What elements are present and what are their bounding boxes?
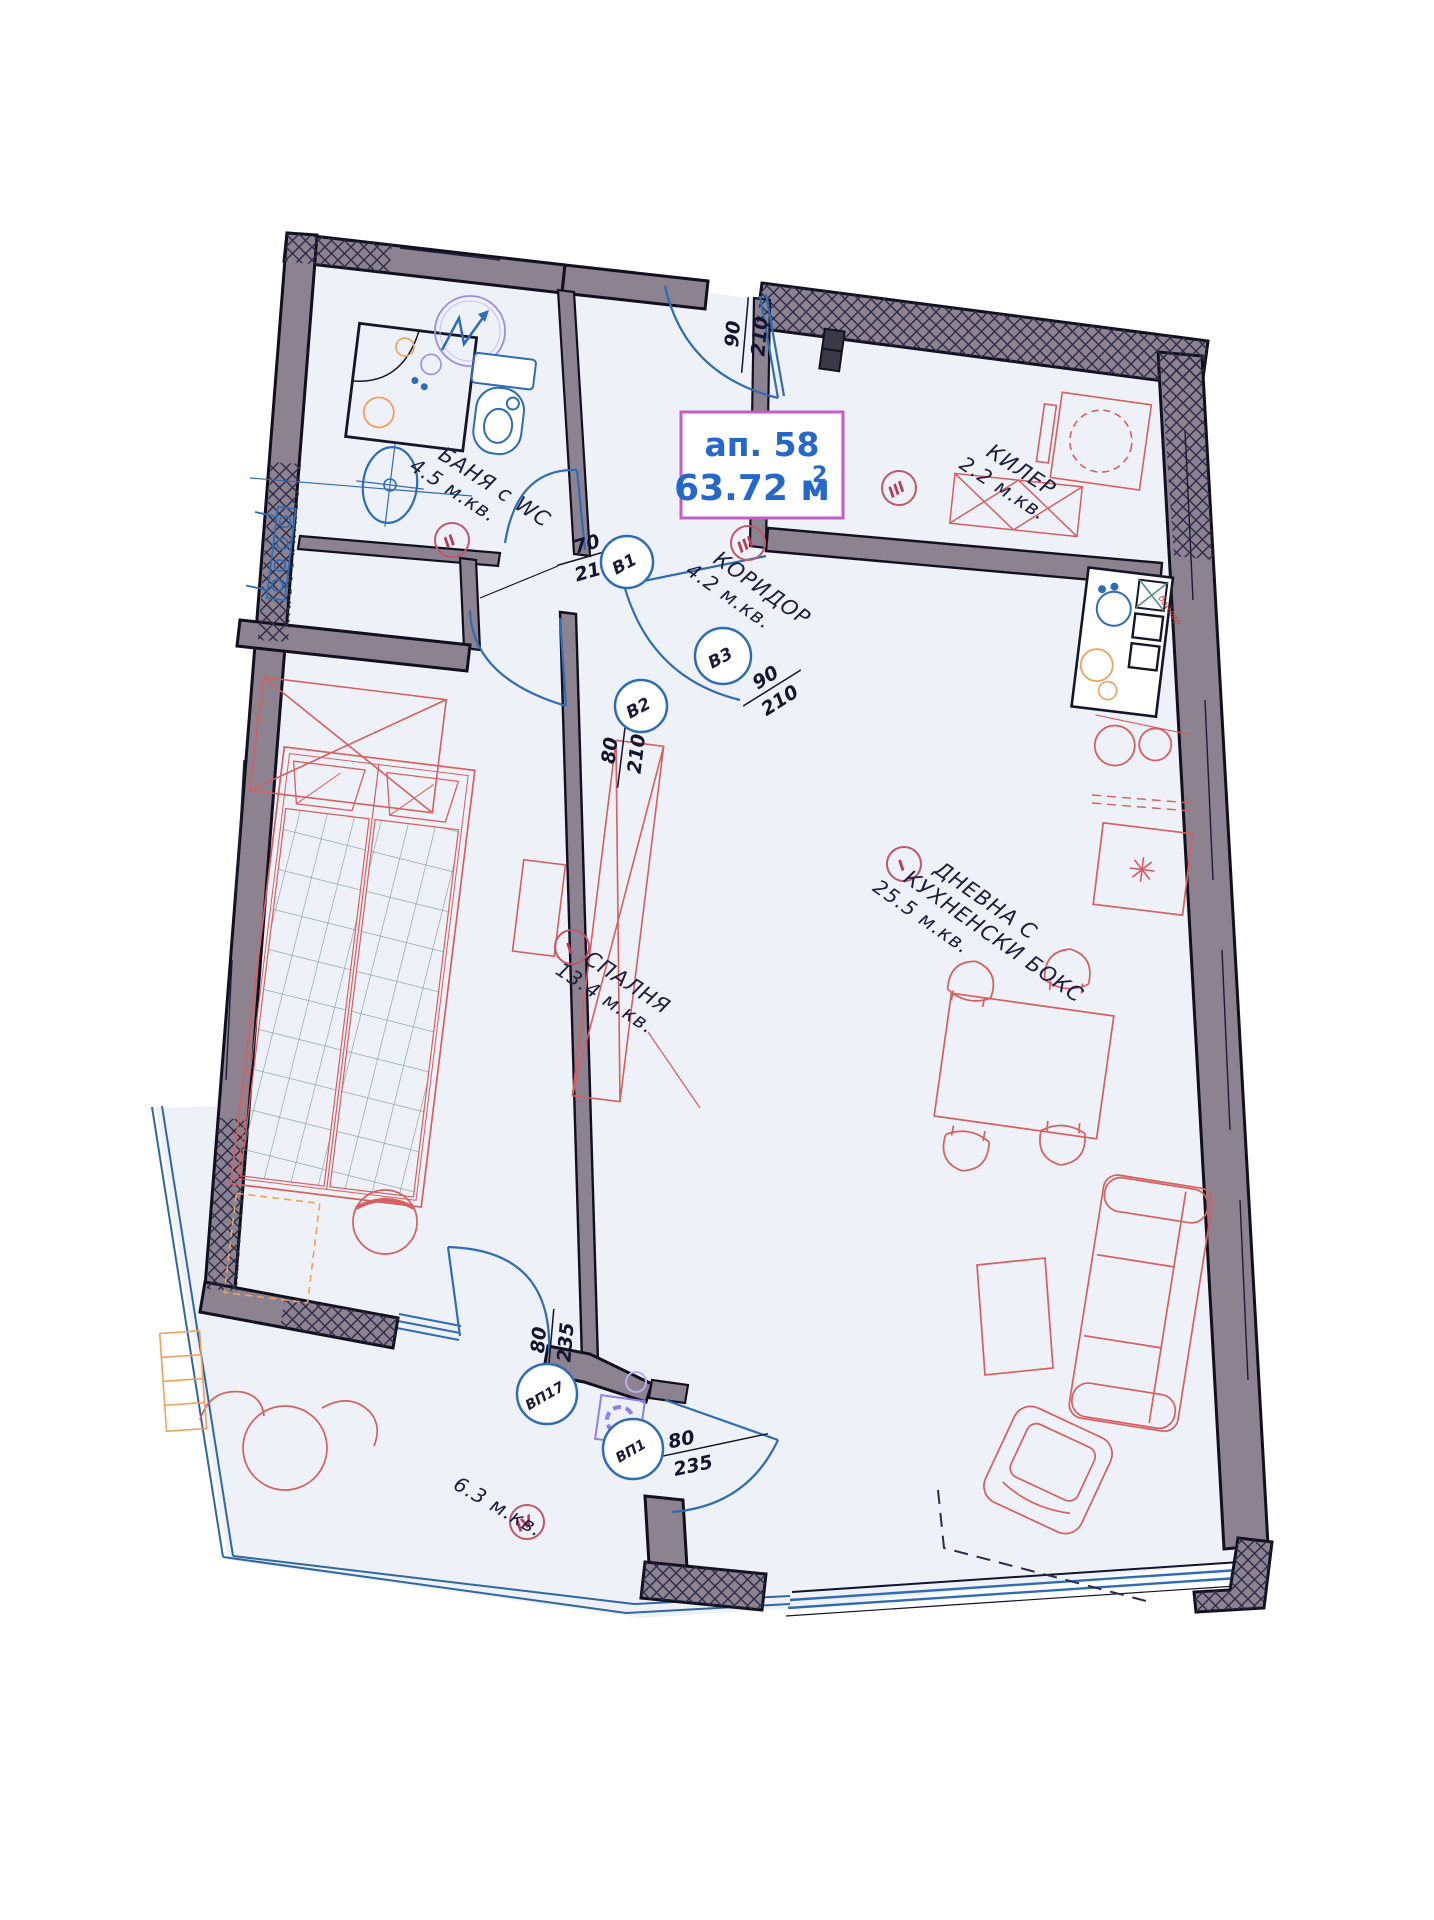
door-circle-vp17: ВП17 [517, 1364, 577, 1424]
kitchen-appliance-block [1072, 567, 1173, 716]
title-area-sup: 2 [812, 463, 827, 488]
entrance-mat [819, 329, 844, 371]
title-area: 63.72 м [674, 468, 830, 509]
dim-vp17-width: 80 [527, 1326, 551, 1354]
floor-plan-svg: бойлер ✳ [0, 0, 1434, 1920]
title-apartment: ап. 58 [704, 425, 819, 464]
floor-plan-page: бойлер ✳ [0, 0, 1434, 1920]
dim-entrance-width: 90 [721, 320, 745, 348]
dim-b2-width: 80 [598, 736, 623, 765]
door-circle-b2: В2 [615, 680, 667, 732]
wall-l-pier-vertical [645, 1496, 687, 1568]
title-box: ап. 58 63.72 м 2 [674, 412, 843, 518]
door-circle-b3: В3 [695, 628, 751, 684]
dim-vp17-height: 235 [553, 1322, 578, 1363]
dim-entrance-height: 210 [747, 316, 772, 357]
door-circle-b1: В1 [601, 536, 653, 588]
fridge-freezer-star: ✳ [1125, 849, 1158, 892]
wall-annex-east [460, 558, 480, 650]
wall-pier-vp1 [649, 1380, 688, 1403]
door-circle-vp1: ВП1 [603, 1419, 663, 1479]
